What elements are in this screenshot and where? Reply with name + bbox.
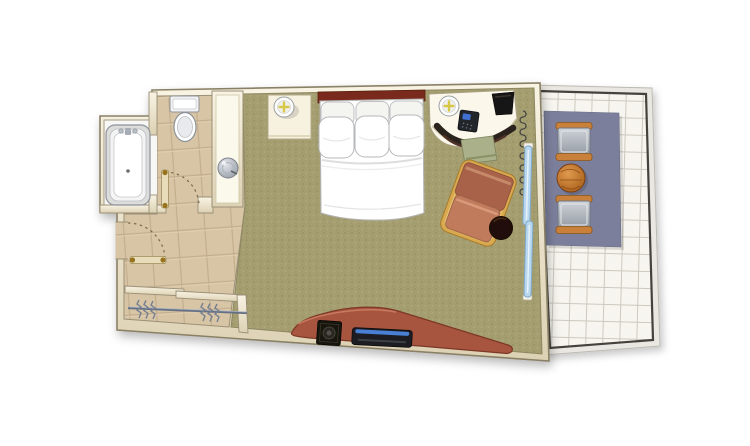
media-player xyxy=(352,327,413,347)
nightstand xyxy=(268,95,311,139)
tv xyxy=(316,320,342,346)
sink-basin xyxy=(218,158,238,178)
desk-lamp xyxy=(439,96,459,116)
balcony-chair-bottom xyxy=(556,196,592,234)
tub-drain xyxy=(126,169,130,173)
double-bed xyxy=(318,90,425,220)
bathtub xyxy=(106,125,150,205)
room-structure xyxy=(100,83,549,361)
telephone xyxy=(458,110,480,132)
floor-plan-canvas xyxy=(0,0,750,446)
balcony xyxy=(532,85,660,355)
pillows-front-row xyxy=(319,115,424,158)
round-side-table xyxy=(490,217,513,240)
door-jamb-post xyxy=(198,197,213,213)
bathroom-door-opening xyxy=(164,204,200,214)
vanity-sink xyxy=(212,91,243,207)
entry-opening xyxy=(116,222,129,259)
balcony-chair-top xyxy=(556,123,592,161)
alcove-top-stub-wall xyxy=(149,92,157,135)
